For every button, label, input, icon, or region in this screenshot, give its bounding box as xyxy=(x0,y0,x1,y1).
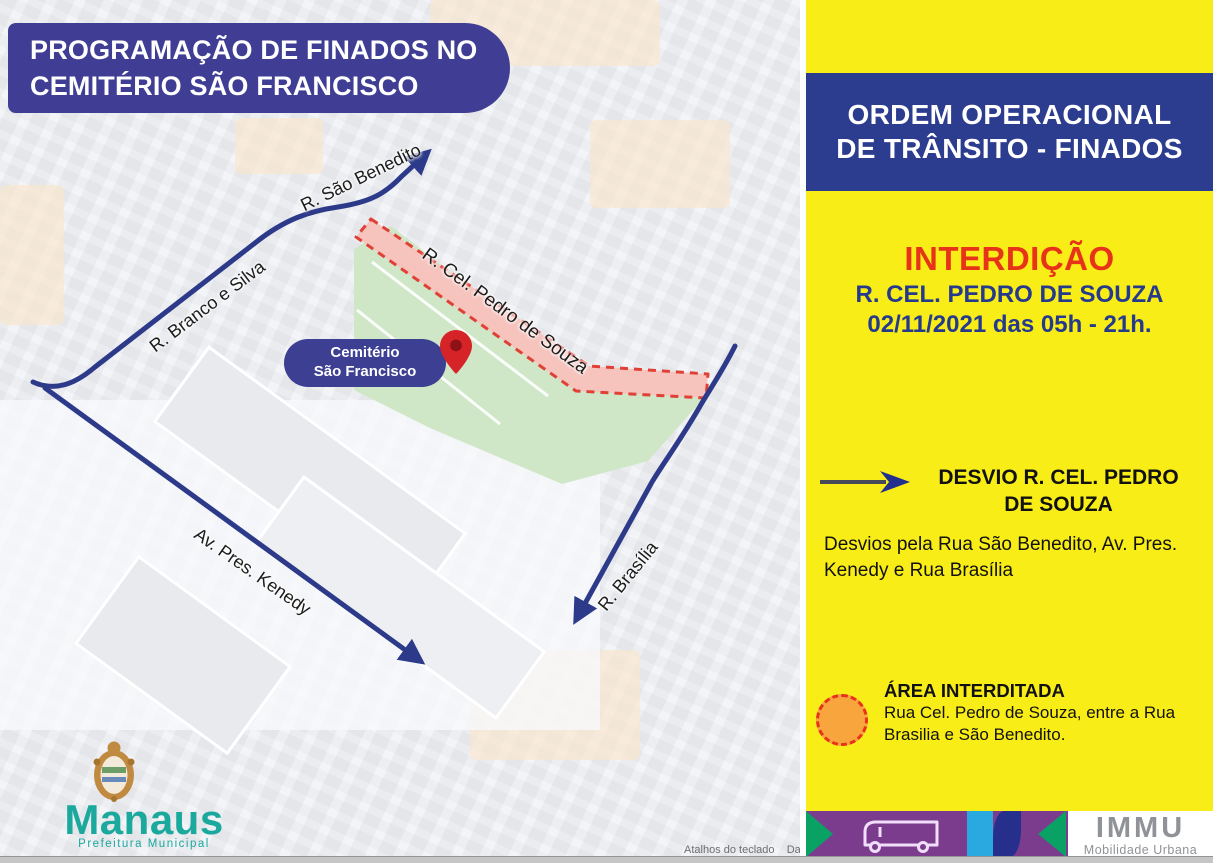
panel-header-line1: ORDEM OPERACIONAL xyxy=(848,98,1172,132)
map-keyboard-shortcuts-link[interactable]: Atalhos do teclado Da xyxy=(684,844,800,856)
immu-logo: IMMU Mobilidade Urbana xyxy=(1068,811,1213,857)
immu-logo-name: IMMU xyxy=(1068,814,1213,843)
immu-logo-subtitle: Mobilidade Urbana xyxy=(1068,843,1213,857)
map-title-banner: PROGRAMAÇÃO DE FINADOS NO CEMITÉRIO SÃO … xyxy=(8,23,510,113)
closed-area-title: ÁREA INTERDITADA xyxy=(884,680,1065,702)
interdicao-datetime: 02/11/2021 das 05h - 21h. xyxy=(806,311,1213,339)
manaus-logo-city: Manaus xyxy=(34,796,254,844)
bus-icon xyxy=(858,815,944,860)
manaus-logo-subtitle: Prefeitura Municipal xyxy=(34,838,254,850)
cemetery-label-pill: Cemitério São Francisco xyxy=(284,339,446,387)
interdicao-title: INTERDIÇÃO xyxy=(806,240,1213,278)
closed-area-description: Rua Cel. Pedro de Souza, entre a Rua Bra… xyxy=(884,702,1204,746)
map-overlay-graphics xyxy=(0,0,800,863)
panel-footer: IMMU Mobilidade Urbana xyxy=(806,811,1213,857)
interdicao-street: R. CEL. PEDRO DE SOUZA xyxy=(806,281,1213,309)
panel-header: ORDEM OPERACIONAL DE TRÂNSITO - FINADOS xyxy=(806,73,1213,191)
closed-area-legend-icon xyxy=(816,694,868,746)
manaus-crest-icon xyxy=(92,740,136,802)
desvio-title: DESVIO R. CEL. PEDRO DE SOUZA xyxy=(911,464,1206,519)
panel-header-line2: DE TRÂNSITO - FINADOS xyxy=(836,132,1182,166)
chevron-right-icon xyxy=(806,811,833,857)
route-pres-kenedy xyxy=(45,388,419,660)
window-bottom-border xyxy=(0,856,1213,863)
desvio-description: Desvios pela Rua São Benedito, Av. Pres.… xyxy=(824,532,1204,583)
map-pin-icon xyxy=(440,330,472,374)
footer-stripe-blue xyxy=(967,811,993,857)
traffic-map: R. São Benedito R. Cel. Pedro de Souza R… xyxy=(0,0,800,863)
detour-arrow-icon xyxy=(818,468,914,496)
footer-stripe-navy xyxy=(993,811,1021,857)
chevron-left-icon xyxy=(1038,811,1066,857)
operational-order-panel: ORDEM OPERACIONAL DE TRÂNSITO - FINADOS … xyxy=(800,0,1213,863)
